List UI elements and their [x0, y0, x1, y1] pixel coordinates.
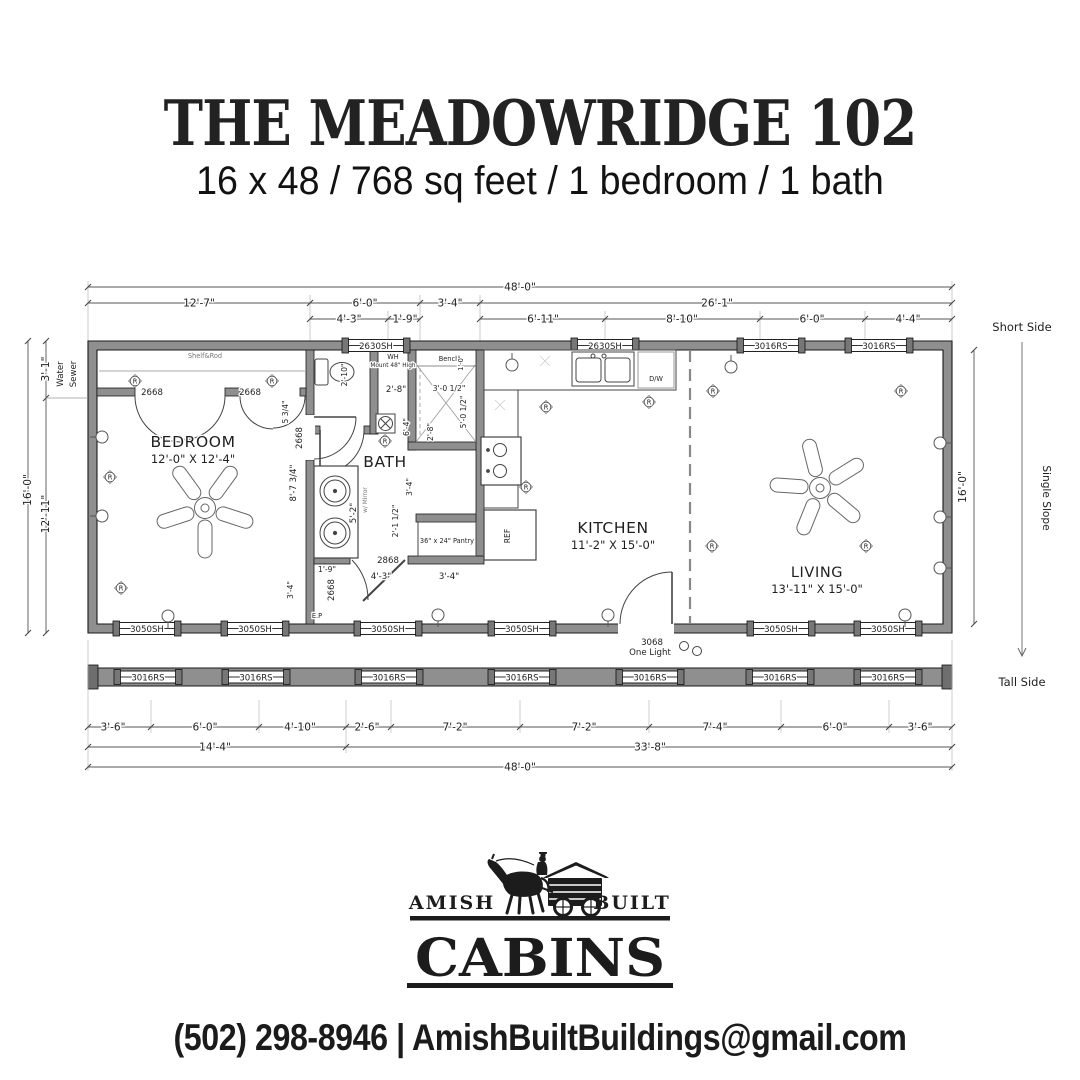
receptacle-symbol: R: [647, 399, 652, 407]
dim-label: 3'-4": [405, 478, 414, 496]
note-refrigerator: REF: [503, 529, 512, 543]
door-label: 3068: [641, 638, 663, 648]
room-size-bedroom: 12'-0" X 12'-4": [151, 452, 235, 466]
note-dishwasher: D/W: [649, 375, 663, 383]
note-pantry: 36" x 24" Pantry: [420, 537, 474, 545]
dim-label: 3'-1": [40, 356, 52, 381]
dimensions-right: 16'-0": [957, 350, 974, 624]
note-electrical-panel: E.P: [312, 612, 322, 620]
dim-label: 8'-10": [666, 314, 698, 326]
receptacle-symbol: R: [710, 543, 715, 551]
door-label: 2668: [295, 427, 305, 449]
room-label-kitchen: KITCHEN: [577, 519, 648, 537]
dim-label: 3'-4": [437, 298, 462, 310]
receptacle-symbol: R: [524, 484, 529, 492]
dim-label: 4'-10": [284, 722, 316, 734]
slope-direction: Single Slope: [1040, 465, 1052, 530]
door-label: 2868: [377, 556, 399, 566]
dim-label: 2'-10": [340, 364, 349, 387]
note-water: Water: [56, 361, 66, 387]
window-label: 3016RS: [239, 674, 272, 684]
ceiling-fan-living: [754, 421, 890, 558]
brand-built: BUILT: [593, 892, 670, 914]
dim-label: 6'-0": [822, 722, 847, 734]
receptacle-symbol: R: [133, 378, 138, 386]
receptacle-symbol: R: [119, 585, 124, 593]
window-label: 3016RS: [763, 674, 796, 684]
brand-cabins: CABINS: [415, 928, 665, 989]
note-shelf-rod: Shelf&Rod: [188, 352, 222, 360]
dim-label: 12'-11": [40, 495, 52, 534]
dim-label: 8'-7 3/4": [289, 465, 299, 502]
dim-label: 3'-0 1/2": [433, 384, 466, 393]
dim-label: 26'-1": [701, 298, 733, 310]
dim-label: 6'-0": [799, 314, 824, 326]
dim-label: 1'-0": [457, 355, 465, 371]
window-label: 3050SH: [505, 625, 539, 635]
flyer-page: THE MEADOWRIDGE 102 16 x 48 / 768 sq fee…: [0, 0, 1080, 1080]
room-label-bath: BATH: [363, 453, 407, 471]
dim-label: 14'-4": [199, 742, 231, 754]
door-label: 2668: [239, 388, 261, 398]
window-label: 3016RS: [505, 674, 538, 684]
contact-info: (502) 298-8946 | AmishBuiltBuildings@gma…: [70, 1017, 1010, 1059]
receptacle-symbol: R: [899, 388, 904, 396]
dim-label: 4'-3": [371, 572, 391, 582]
dim-label: 2'-1 1/2": [391, 505, 400, 538]
window-label: 3016RS: [862, 342, 895, 352]
receptacle-symbol: R: [864, 543, 869, 551]
dimensions-top: 48'-0" 12'-7" 6'-0" 3'-4" 26'-1" 4'-3" 1…: [88, 281, 952, 341]
slope-short-side: Short Side: [992, 320, 1051, 334]
porch-windows: 3016RS 3016RS 3016RS 3016RS 3016RS 3016R…: [88, 665, 952, 689]
receptacle-symbol: R: [544, 404, 549, 412]
slope-tall-side: Tall Side: [997, 675, 1045, 689]
room-size-living: 13'-11" X 15'-0": [771, 582, 863, 596]
note-water-heater: WH: [387, 353, 399, 361]
door-label: One Light: [629, 648, 671, 658]
dim-label: 2'-6": [354, 722, 379, 734]
dim-label: 3'-4": [439, 572, 459, 582]
dim-label: 5 3/4": [281, 401, 290, 424]
receptacle-symbol: R: [383, 438, 388, 446]
note-sewer: Sewer: [69, 360, 79, 387]
dim-label: 2'-8": [426, 423, 435, 441]
door-label: 2668: [327, 579, 337, 601]
dim-label: 4'-4": [895, 314, 920, 326]
windows-bottom: 3050SH 3050SH 3050SH 3050SH 3050SH 3050S…: [113, 621, 922, 636]
dim-label: 7'-2": [571, 722, 596, 734]
window-label: 3016RS: [131, 674, 164, 684]
room-label-bedroom: BEDROOM: [150, 433, 235, 451]
brand-amish: AMISH: [408, 892, 495, 914]
receptacle-symbol: R: [270, 378, 275, 386]
door-label: 2668: [141, 388, 163, 398]
window-label: 3050SH: [871, 625, 905, 635]
amish-built-cabins-logo: AMISH BUILT CABINS: [395, 852, 685, 1002]
room-label-living: LIVING: [791, 565, 843, 581]
roof-slope-annotation: Short Side Single Slope Tall Side: [992, 320, 1052, 689]
window-label: 3050SH: [764, 625, 798, 635]
logo-rule-bottom: [407, 983, 673, 988]
dim-label: 16'-0": [22, 474, 34, 506]
dimensions-bottom: 3'-6" 6'-0" 4'-10" 2'-6" 7'-2" 7'-2" 7'-…: [88, 640, 952, 774]
logo-rule-top: [410, 916, 670, 921]
dim-label: 6'-0": [192, 722, 217, 734]
window-label: 3016RS: [372, 674, 405, 684]
page-subtitle: 16 x 48 / 768 sq feet / 1 bedroom / 1 ba…: [32, 159, 1047, 204]
window-label: 3016RS: [871, 674, 904, 684]
dim-label: 7'-4": [702, 722, 727, 734]
dim-label: 6'-11": [527, 314, 559, 326]
window-label: 3050SH: [238, 625, 272, 635]
receptacle-symbol: R: [108, 474, 113, 482]
dim-label: 3'-4": [286, 581, 295, 599]
dim-label: 16'-0": [957, 471, 969, 503]
dim-label: 1'-9": [392, 314, 417, 326]
dim-label: 3'-6": [100, 722, 125, 734]
dim-label: 6'-0": [352, 298, 377, 310]
window-label: 3050SH: [371, 625, 405, 635]
horse-and-buggy-icon: [488, 852, 609, 916]
window-label: 2630SH: [359, 342, 393, 352]
room-size-kitchen: 11'-2" X 15'-0": [571, 538, 655, 552]
dim-label: 5'-0 1/2": [459, 396, 468, 429]
receptacle-symbol: R: [711, 388, 716, 396]
dim-label: 2'-8": [386, 385, 406, 395]
dim-label: 48'-0": [504, 282, 536, 294]
dim-label: 12'-7": [183, 298, 215, 310]
dim-label: 6'-4": [402, 418, 411, 436]
dim-label: 4'-3": [336, 314, 361, 326]
note-mirror: w/ Mirror: [363, 487, 369, 513]
dim-label: 1'-9": [318, 565, 336, 574]
floor-plan: 48'-0" 12'-7" 6'-0" 3'-4" 26'-1" 4'-3" 1…: [0, 265, 1080, 785]
dim-label: 7'-2": [442, 722, 467, 734]
toilet-tank: [315, 359, 328, 385]
dim-label: 5'-2": [349, 503, 359, 523]
dim-label: 48'-0": [504, 762, 536, 774]
dimensions-left: 16'-0" 3'-1" 12'-11" Water Sewer: [22, 341, 88, 633]
page-title: THE MEADOWRIDGE 102: [86, 90, 993, 156]
window-label: 3050SH: [130, 625, 164, 635]
window-label: 3016RS: [754, 342, 787, 352]
dim-label: 33'-8": [634, 742, 666, 754]
window-label: 3016RS: [633, 674, 666, 684]
note-water-heater: Mount 48" High: [370, 363, 416, 369]
dim-label: 3'-6": [907, 722, 932, 734]
